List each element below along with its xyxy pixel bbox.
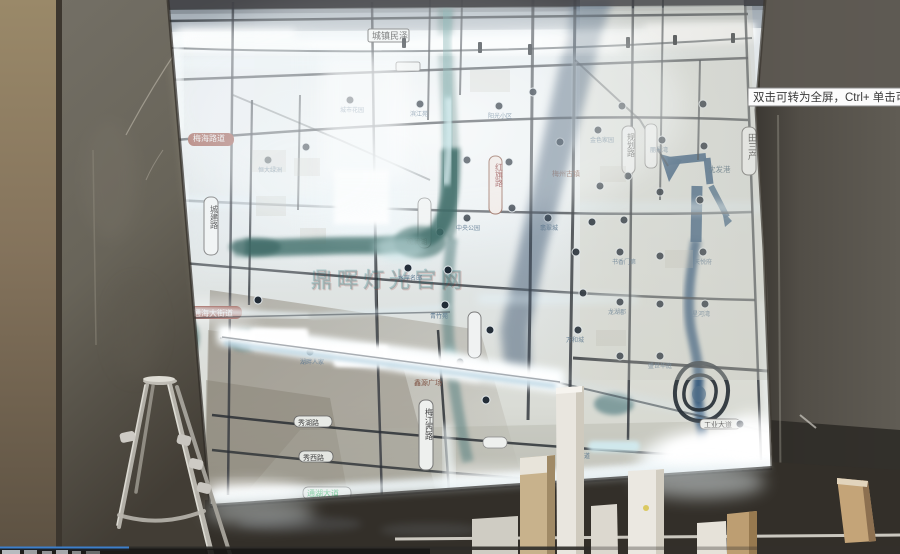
svg-text:湖畔人家: 湖畔人家 (300, 358, 324, 366)
svg-text:秀西路: 秀西路 (303, 453, 324, 462)
svg-text:青竹苑: 青竹苑 (430, 312, 448, 320)
svg-text:秀湖路: 秀湖路 (298, 418, 319, 427)
svg-text:鼎晖灯光官网: 鼎晖灯光官网 (311, 268, 467, 292)
svg-text:鑫源广场: 鑫源广场 (414, 378, 442, 387)
svg-text:双击可转为全屏，Ctrl+ 单击可转为: 双击可转为全屏，Ctrl+ 单击可转为 (753, 90, 900, 104)
svg-text:梅江西路: 梅江西路 (425, 407, 434, 440)
svg-text:水岸名邸: 水岸名邸 (398, 274, 422, 282)
svg-text:中央公园: 中央公园 (456, 224, 480, 232)
svg-text:工业大道: 工业大道 (704, 420, 732, 429)
